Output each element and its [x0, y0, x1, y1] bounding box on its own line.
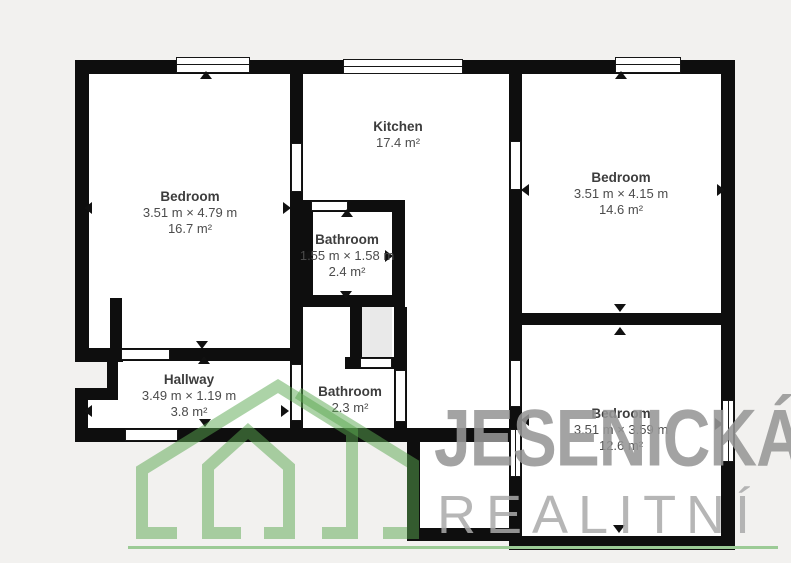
room-name: Bathroom	[300, 232, 394, 248]
room-label-kitchen: Kitchen 17.4 m²	[373, 119, 423, 151]
room-name: Kitchen	[373, 119, 423, 135]
door-bedroom1-kitchen-icon	[291, 143, 302, 192]
room-dimensions: 1.55 m × 1.58 m	[300, 248, 394, 264]
dim-arrow-right-icon	[717, 184, 725, 196]
dim-arrow-up-icon	[200, 71, 212, 79]
door-kitchen-bedroom2-icon	[510, 141, 521, 190]
hatch-shaft-icon	[360, 358, 392, 368]
dim-arrow-left-icon	[84, 202, 92, 214]
dim-arrow-left-icon	[521, 184, 529, 196]
room-label-bedroom-2: Bedroom 3.51 m × 4.15 m 14.6 m²	[574, 170, 668, 218]
room-area: 16.7 m²	[143, 221, 237, 237]
dim-arrow-left-icon	[84, 405, 92, 417]
watermark-agency-subtitle: REALITNÍ	[437, 488, 760, 542]
wall-bedroom1-stub	[110, 298, 122, 354]
dim-arrow-up-icon	[614, 327, 626, 335]
room-label-bathroom-1: Bathroom 1.55 m × 1.58 m 2.4 m²	[300, 232, 394, 280]
room-area: 14.6 m²	[574, 202, 668, 218]
watermark-underline	[128, 546, 778, 549]
room-name: Bedroom	[143, 189, 237, 205]
dim-arrow-right-icon	[283, 202, 291, 214]
room-area: 2.4 m²	[300, 264, 394, 280]
room-name: Bedroom	[574, 170, 668, 186]
dim-arrow-down-icon	[196, 341, 208, 349]
agency-houses-logo-icon	[115, 370, 455, 555]
watermark-agency-name: JESENICKÁ	[434, 397, 791, 478]
dim-arrow-up-icon	[615, 71, 627, 79]
wall-bedroom2-bedroom3	[509, 313, 735, 325]
dim-arrow-down-icon	[340, 291, 352, 299]
shaft-area	[362, 307, 392, 358]
window-kitchen-icon	[343, 59, 463, 74]
dim-arrow-down-icon	[614, 304, 626, 312]
floor-plan: Bedroom 3.51 m × 4.79 m 16.7 m² Kitchen …	[0, 0, 791, 563]
room-area: 17.4 m²	[373, 135, 423, 151]
door-bedroom1-hallway-icon	[121, 349, 170, 360]
dim-arrow-up-icon	[198, 356, 210, 364]
room-dimensions: 3.51 m × 4.79 m	[143, 205, 237, 221]
dim-arrow-up-icon	[341, 209, 353, 217]
room-label-bedroom-1: Bedroom 3.51 m × 4.79 m 16.7 m²	[143, 189, 237, 237]
window-bedroom1-icon	[176, 57, 250, 73]
wall-bathroom1-bottom	[303, 295, 405, 307]
room-dimensions: 3.51 m × 4.15 m	[574, 186, 668, 202]
